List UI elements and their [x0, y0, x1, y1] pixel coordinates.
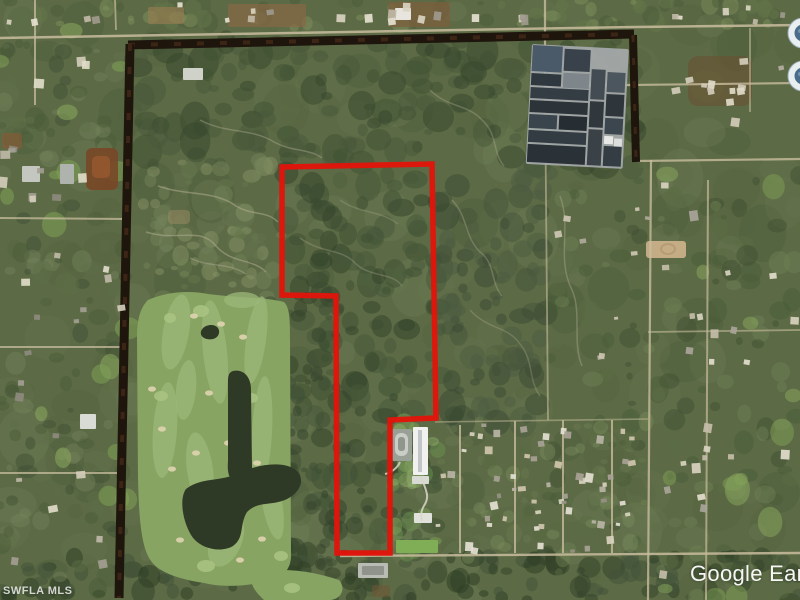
greenhouse-complex: [526, 44, 629, 169]
mls-watermark: SWFLA MLS: [3, 585, 72, 597]
google-earth-watermark: Google Earth: [690, 561, 800, 587]
listing-photo: Google Earth SWFLA MLS: [0, 0, 800, 600]
satellite-map-image: [0, 0, 800, 600]
